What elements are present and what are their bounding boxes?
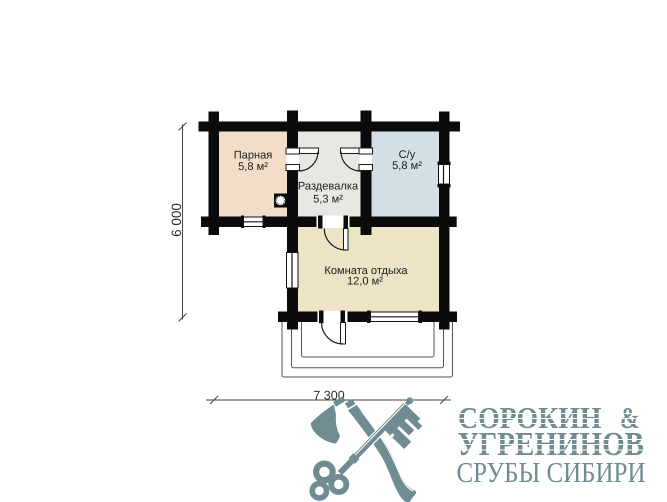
svg-text:Раздевалка: Раздевалка	[298, 181, 359, 193]
svg-text:Парная: Парная	[234, 150, 273, 162]
svg-text:12,0 м²: 12,0 м²	[347, 276, 383, 288]
svg-text:5,8 м²: 5,8 м²	[238, 161, 268, 173]
svg-text:5,8 м²: 5,8 м²	[392, 160, 422, 172]
svg-text:5,3 м²: 5,3 м²	[313, 194, 343, 206]
svg-text:6 000: 6 000	[169, 203, 184, 237]
svg-text:СРУБЫ СИБИРИ: СРУБЫ СИБИРИ	[457, 457, 646, 489]
